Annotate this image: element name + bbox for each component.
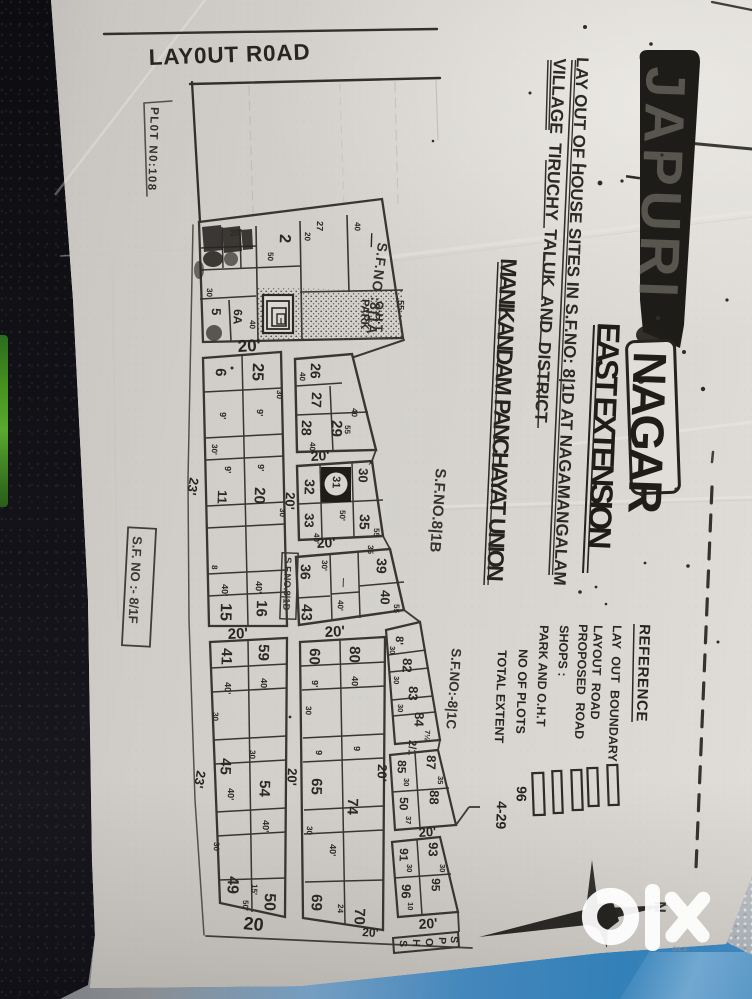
svg-text:OLX: OLX [672, 946, 688, 953]
